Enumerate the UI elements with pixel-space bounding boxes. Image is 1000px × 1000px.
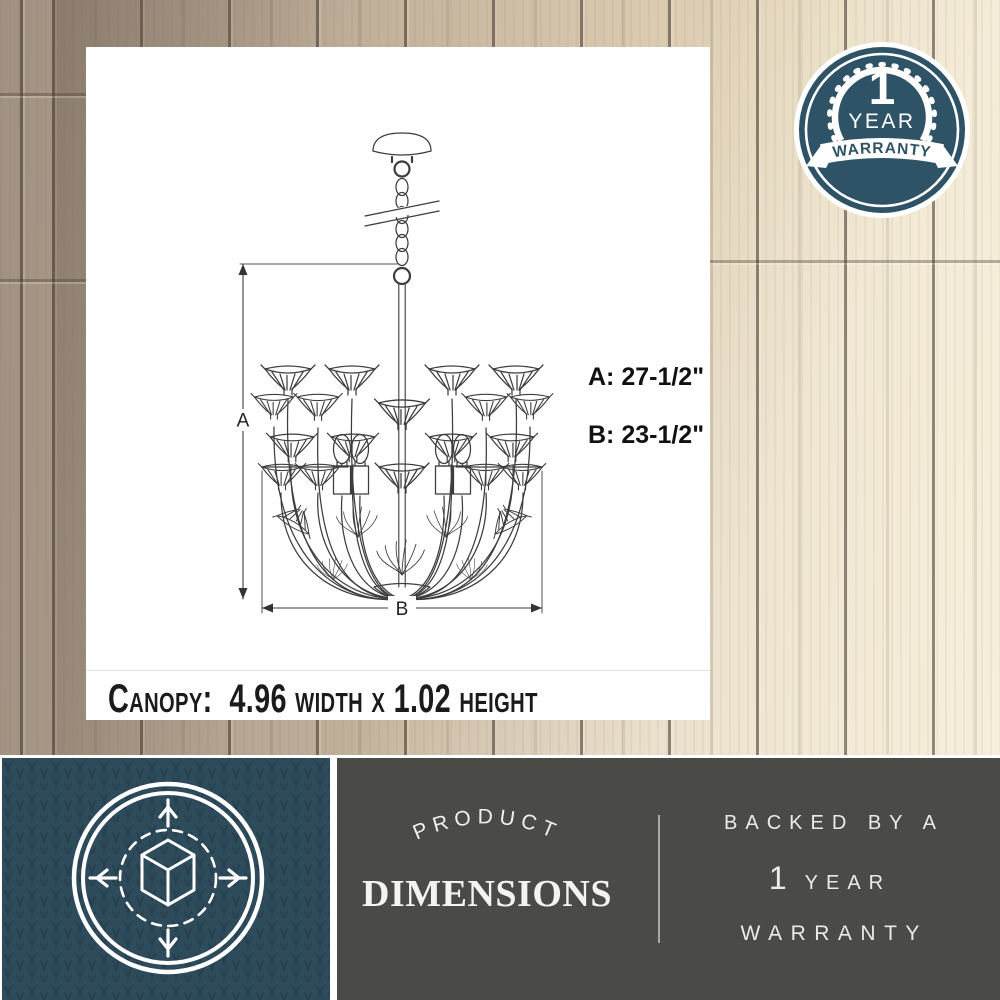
plank-seam <box>0 93 86 96</box>
product-arch-text: PRODUCT <box>410 805 565 844</box>
dimension-card: A B A: 27-1/2" B: 23-1/2" Canopy: 4.96 w… <box>86 47 710 720</box>
badge-year: YEAR <box>848 110 915 133</box>
center-rod <box>399 284 405 587</box>
dimensions-cube-icon <box>2 758 330 1000</box>
dimensions-title: DIMENSIONS <box>362 873 612 915</box>
plank-seam <box>690 260 1000 263</box>
hang-chain <box>365 179 439 285</box>
year-word: YEAR <box>805 872 891 895</box>
marker-b: B <box>396 599 409 620</box>
dim-b-label: B: 23-1/2" <box>588 421 704 449</box>
warranty-statement: BACKED BY A 1 YEAR WARRANTY <box>660 758 1000 1000</box>
dimension-line-a: A <box>232 264 399 599</box>
product-dimensions-graphic: A B A: 27-1/2" B: 23-1/2" Canopy: 4.96 w… <box>0 0 1000 1000</box>
center-ornaments <box>374 399 430 617</box>
badge-number: 1 <box>869 62 896 115</box>
dimensions-tile <box>2 758 330 1000</box>
canopy-spec-text: Canopy: 4.96 width x 1.02 height <box>108 677 538 722</box>
canopy-mount <box>373 133 431 177</box>
svg-text:PRODUCT: PRODUCT <box>410 805 565 844</box>
dimension-line-b: B <box>262 596 542 620</box>
warranty-badge: 1 YEAR WARRANTY <box>792 40 972 220</box>
product-dimensions-title: PRODUCT DIMENSIONS <box>337 758 660 1000</box>
one-year-text: 1 YEAR <box>769 860 891 897</box>
warranty-word: WARRANTY <box>732 922 928 946</box>
card-divider-line <box>86 670 710 671</box>
dim-a-label: A: 27-1/2" <box>588 363 704 391</box>
plank-seam <box>0 279 86 282</box>
footer-strip: PRODUCT DIMENSIONS BACKED BY A 1 YEAR WA… <box>0 755 1000 1000</box>
year-number: 1 <box>769 860 787 897</box>
backed-by-text: BACKED BY A <box>716 812 944 835</box>
marker-a: A <box>237 411 250 432</box>
footer-panel: PRODUCT DIMENSIONS BACKED BY A 1 YEAR WA… <box>337 758 1000 1000</box>
chandelier-line-drawing: A B A: 27-1/2" B: 23-1/2" <box>86 47 710 720</box>
